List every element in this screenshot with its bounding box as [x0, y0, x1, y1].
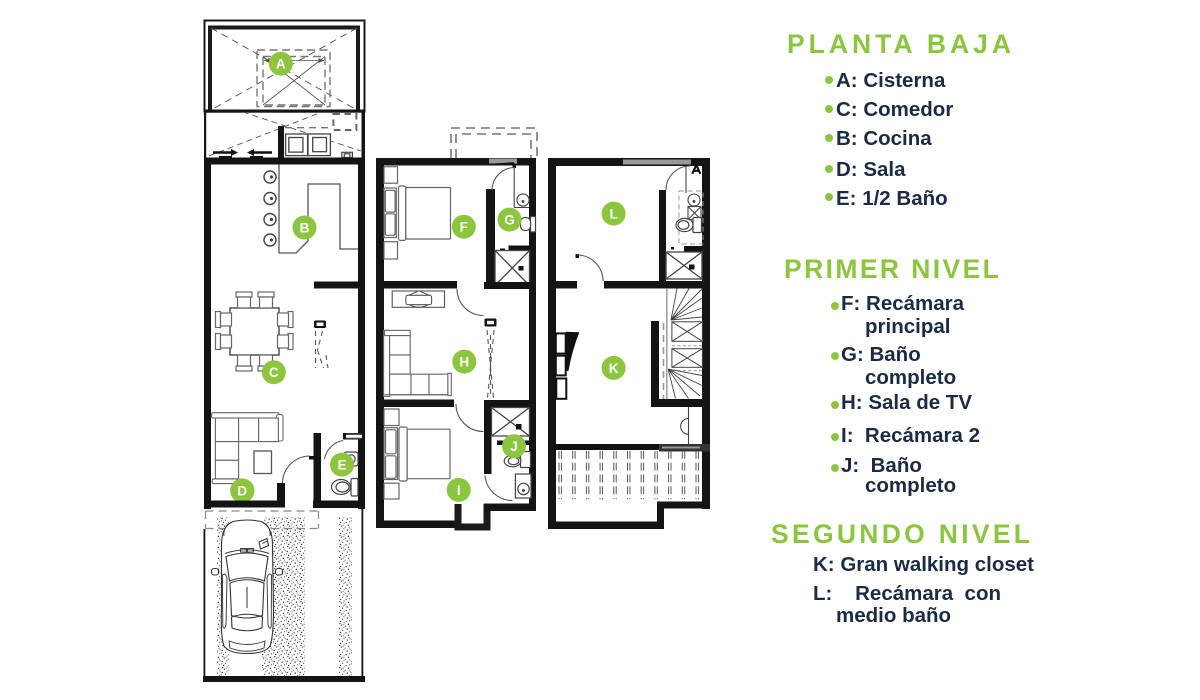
svg-text:E: E [337, 458, 346, 473]
svg-text:C: C [269, 365, 279, 380]
svg-text:F: F [460, 220, 468, 235]
svg-text:L: L [609, 207, 617, 222]
svg-text:B: B [300, 220, 310, 235]
svg-text:A: A [276, 57, 286, 72]
svg-text:G: G [504, 213, 515, 228]
svg-text:H: H [459, 354, 469, 369]
svg-text:D: D [237, 484, 247, 499]
svg-text:I: I [457, 483, 461, 498]
svg-text:J: J [510, 439, 518, 454]
svg-text:K: K [609, 361, 619, 376]
